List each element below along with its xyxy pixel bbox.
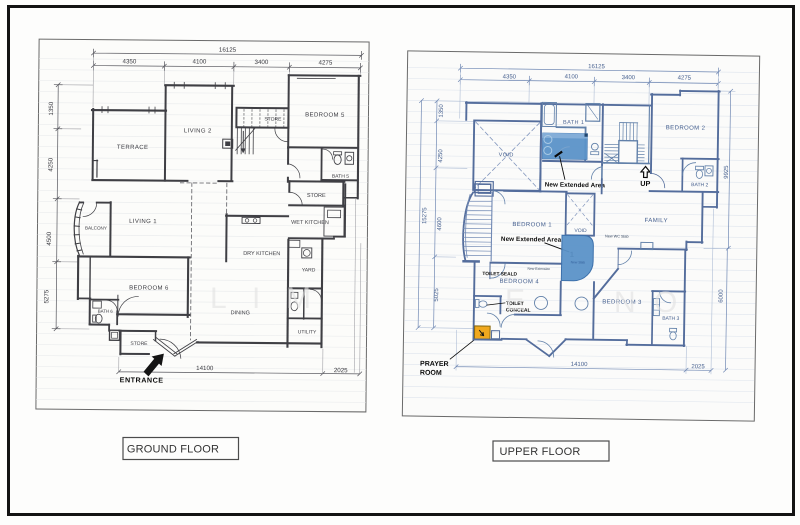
svg-text:4500: 4500 [46, 231, 53, 245]
svg-text:BEDROOM 1: BEDROOM 1 [512, 222, 552, 229]
svg-text:4275: 4275 [678, 75, 692, 81]
svg-text:UP: UP [640, 179, 650, 188]
svg-text:9925: 9925 [724, 165, 730, 179]
svg-text:14100: 14100 [571, 362, 588, 368]
svg-text:STORE: STORE [130, 341, 148, 347]
svg-text:M: M [286, 282, 311, 315]
svg-text:4100: 4100 [193, 58, 207, 65]
svg-text:4275: 4275 [319, 60, 333, 67]
svg-text:BATH 2: BATH 2 [691, 182, 708, 188]
svg-text:1350: 1350 [48, 101, 55, 115]
svg-text:New WC Slab: New WC Slab [605, 234, 629, 238]
svg-text:VOID: VOID [574, 228, 587, 234]
svg-text:TOILET SEALD: TOILET SEALD [482, 271, 517, 278]
svg-text:O: O [654, 286, 677, 319]
svg-text:BATH 1: BATH 1 [563, 120, 584, 126]
svg-text:L: L [210, 282, 227, 315]
svg-text:STORE: STORE [307, 193, 326, 199]
svg-text:DINING: DINING [231, 310, 250, 316]
svg-text:ROOM: ROOM [420, 370, 442, 377]
svg-text:UPPER FLOOR: UPPER FLOOR [499, 446, 580, 458]
svg-text:TERRACE: TERRACE [117, 145, 149, 151]
svg-text:3400: 3400 [255, 59, 269, 66]
svg-text:PRAYER: PRAYER [420, 361, 449, 368]
svg-text:BEDROOM 5: BEDROOM 5 [305, 112, 345, 118]
svg-text:E: E [505, 284, 525, 317]
svg-text:2025: 2025 [334, 367, 348, 374]
svg-text:LIVING 1: LIVING 1 [129, 219, 157, 225]
svg-text:BALCONY: BALCONY [85, 225, 107, 230]
svg-text:N: N [614, 286, 636, 319]
svg-text:BEDROOM 6: BEDROOM 6 [129, 285, 169, 291]
svg-text:4250: 4250 [438, 149, 444, 163]
svg-text:YARD: YARD [302, 267, 316, 273]
svg-text:STORE: STORE [264, 117, 282, 123]
svg-text:BATH 6: BATH 6 [98, 309, 114, 314]
svg-text:GROUND FLOOR: GROUND FLOOR [127, 444, 219, 456]
svg-text:WET KITCHEN: WET KITCHEN [291, 220, 329, 226]
svg-text:4600: 4600 [437, 217, 443, 231]
svg-text:I: I [252, 282, 260, 315]
svg-text:ENTRANCE: ENTRANCE [120, 375, 164, 384]
svg-text:BEDROOM 2: BEDROOM 2 [666, 125, 706, 132]
svg-text:New Slab: New Slab [571, 260, 586, 264]
svg-text:New Extended Area: New Extended Area [501, 236, 562, 244]
svg-text:4350: 4350 [123, 58, 137, 65]
svg-text:1350: 1350 [439, 104, 445, 118]
svg-text:16125: 16125 [219, 47, 237, 54]
svg-text:New Extended Area: New Extended Area [545, 181, 606, 189]
svg-text:3400: 3400 [622, 75, 636, 81]
svg-text:16125: 16125 [588, 64, 605, 70]
svg-text:4350: 4350 [503, 74, 517, 80]
svg-text:5025: 5025 [434, 287, 440, 301]
svg-text:BATH 5: BATH 5 [332, 174, 349, 180]
svg-text:4100: 4100 [565, 74, 579, 80]
svg-text:5275: 5275 [43, 289, 50, 303]
svg-text:UTILITY: UTILITY [298, 329, 317, 335]
svg-text:FAMILY: FAMILY [645, 218, 668, 224]
svg-text:VOID: VOID [499, 152, 514, 158]
svg-text:15275: 15275 [422, 207, 428, 224]
svg-text:2025: 2025 [691, 364, 705, 370]
svg-text:6000: 6000 [719, 289, 725, 303]
svg-text:14100: 14100 [196, 365, 214, 372]
svg-text:4250: 4250 [47, 157, 54, 171]
svg-text:LIVING 2: LIVING 2 [184, 128, 212, 134]
svg-text:New Extension: New Extension [527, 267, 550, 271]
svg-text:DRY KITCHEN: DRY KITCHEN [243, 251, 280, 257]
